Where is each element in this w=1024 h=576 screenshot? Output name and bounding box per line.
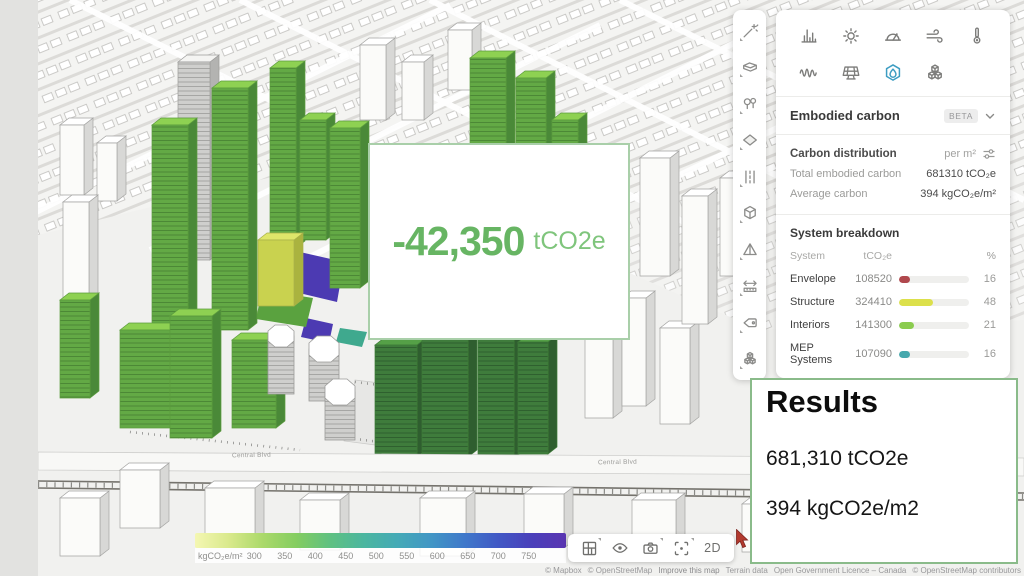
asset-cubes-icon bbox=[741, 350, 759, 368]
layout-grid-icon bbox=[580, 539, 599, 558]
beta-badge: BETA bbox=[944, 109, 978, 123]
carbon-savings-callout: -42,350 tCO2e bbox=[368, 143, 630, 340]
carbon-distribution-label: Carbon distribution bbox=[790, 148, 944, 160]
eye-icon bbox=[610, 538, 630, 558]
temperature-tool[interactable] bbox=[962, 22, 992, 49]
row-percent: 48 bbox=[976, 296, 996, 308]
mode-2d-label: 2D bbox=[704, 541, 721, 555]
attr-licence: Open Government Licence – Canada bbox=[774, 566, 907, 575]
camera-icon bbox=[641, 539, 660, 558]
row-system: Interiors bbox=[790, 319, 846, 331]
results-total: 681,310 tCO2e bbox=[766, 447, 1002, 471]
row-value: 324410 bbox=[846, 296, 892, 308]
attr-osm: © OpenStreetMap bbox=[588, 566, 653, 575]
legend-tick: 700 bbox=[483, 551, 514, 561]
daylight-gauge-icon bbox=[882, 25, 904, 47]
wind-tool[interactable] bbox=[920, 22, 950, 49]
table-row: Structure 324410 48 bbox=[790, 296, 996, 308]
results-average: 394 kgCO2e/m2 bbox=[766, 497, 1002, 521]
col-tco2e: tCO₂e bbox=[846, 250, 892, 262]
legend-tick: 750 bbox=[514, 551, 545, 561]
table-row: Envelope 108520 16 bbox=[790, 273, 996, 285]
attr-contributors: © OpenStreetMap contributors bbox=[912, 566, 1021, 575]
focus-button[interactable] bbox=[670, 536, 694, 560]
attr-terrain: Terrain data bbox=[726, 566, 768, 575]
legend-tick: 300 bbox=[239, 551, 270, 561]
road-label: Central Blvd bbox=[598, 459, 637, 467]
sun-hours-tool[interactable] bbox=[836, 22, 866, 49]
table-row: MEP Systems 107090 16 bbox=[790, 342, 996, 366]
volume-box-icon bbox=[741, 58, 759, 76]
embodied-carbon-icon bbox=[882, 62, 904, 84]
noise-wave-icon bbox=[798, 62, 820, 84]
system-breakdown-section: System breakdown System tCO₂e % Envelope… bbox=[776, 215, 1010, 366]
breakdown-header: System tCO₂e % bbox=[790, 250, 996, 262]
row-value: 141300 bbox=[846, 319, 892, 331]
legend-gradient bbox=[195, 533, 566, 548]
road-label: Central Blvd bbox=[232, 452, 271, 460]
panel-title: Embodied carbon bbox=[790, 108, 938, 123]
row-bar-fill bbox=[899, 299, 933, 306]
surface-icon bbox=[741, 131, 759, 149]
box-3d-tool[interactable] bbox=[739, 202, 761, 224]
total-carbon-value: 681310 tCO₂e bbox=[926, 168, 996, 180]
app-window: Central Blvd Central Blvd Central Blvd bbox=[0, 0, 1024, 576]
sliders-icon[interactable] bbox=[982, 147, 996, 161]
per-m2-unit: per m² bbox=[944, 148, 976, 160]
measure-tool[interactable] bbox=[739, 275, 761, 297]
edit-toolbar bbox=[733, 10, 766, 380]
row-bar-track bbox=[899, 276, 969, 283]
chevron-down-icon[interactable] bbox=[984, 110, 996, 122]
row-system: Envelope bbox=[790, 273, 846, 285]
analysis-panel: Embodied carbon BETA Carbon distribution… bbox=[776, 10, 1010, 378]
vegetation-tool[interactable] bbox=[739, 93, 761, 115]
panel-section-header: Embodied carbon BETA bbox=[776, 97, 1010, 134]
sun-icon bbox=[840, 25, 862, 47]
callout-value: -42,350 bbox=[392, 218, 524, 265]
thermometer-icon bbox=[966, 25, 988, 47]
row-bar-fill bbox=[899, 351, 910, 358]
carbon-legend: kgCO₂e/m² 300 350 400 450 500 550 600 65… bbox=[195, 533, 566, 563]
camera-button[interactable] bbox=[639, 536, 663, 560]
row-bar-fill bbox=[899, 276, 910, 283]
row-percent: 21 bbox=[976, 319, 996, 331]
average-carbon-label: Average carbon bbox=[790, 188, 920, 200]
legend-tick: 600 bbox=[422, 551, 453, 561]
legend-tick: 650 bbox=[453, 551, 484, 561]
row-system: Structure bbox=[790, 296, 846, 308]
roads-tool[interactable] bbox=[739, 166, 761, 188]
legend-labels: kgCO₂e/m² 300 350 400 450 500 550 600 65… bbox=[195, 548, 566, 563]
row-bar-track bbox=[899, 299, 969, 306]
row-bar-track bbox=[899, 322, 969, 329]
materials-tool[interactable] bbox=[920, 59, 950, 86]
vegetation-icon bbox=[741, 95, 759, 113]
label-tag-icon bbox=[741, 314, 759, 332]
prism-icon bbox=[741, 241, 759, 259]
mouse-cursor bbox=[735, 529, 751, 555]
magic-wand-icon bbox=[741, 22, 759, 40]
asset-cubes-tool[interactable] bbox=[739, 348, 761, 370]
mode-2d-button[interactable]: 2D bbox=[701, 536, 725, 560]
carbon-distribution-section: Carbon distribution per m² Total embodie… bbox=[776, 135, 1010, 214]
magic-wand-tool[interactable] bbox=[739, 20, 761, 42]
viewport-toolbar: 2D bbox=[568, 534, 734, 562]
callout-unit: tCO2e bbox=[533, 227, 605, 256]
legend-tick: 450 bbox=[331, 551, 362, 561]
wind-icon bbox=[924, 25, 946, 47]
solar-panel-icon bbox=[840, 62, 862, 84]
cursor-arrow-icon bbox=[735, 529, 751, 550]
solar-panel-tool[interactable] bbox=[836, 59, 866, 86]
legend-tick: 500 bbox=[361, 551, 392, 561]
surface-tool[interactable] bbox=[739, 129, 761, 151]
col-system: System bbox=[790, 250, 846, 262]
analysis-tools-grid bbox=[776, 10, 1010, 96]
statistics-tool[interactable] bbox=[794, 22, 824, 49]
map-attribution: © Mapbox © OpenStreetMap Improve this ma… bbox=[545, 566, 1021, 575]
noise-tool[interactable] bbox=[794, 59, 824, 86]
visibility-button[interactable] bbox=[608, 536, 632, 560]
row-bar-fill bbox=[899, 322, 914, 329]
results-title: Results bbox=[766, 384, 1002, 420]
volume-box-tool[interactable] bbox=[739, 56, 761, 78]
total-carbon-label: Total embodied carbon bbox=[790, 168, 926, 180]
row-value: 108520 bbox=[846, 273, 892, 285]
system-breakdown-title: System breakdown bbox=[790, 226, 996, 240]
legend-unit: kgCO₂e/m² bbox=[195, 551, 239, 561]
col-percent: % bbox=[976, 250, 996, 262]
layout-grid-button[interactable] bbox=[577, 536, 601, 560]
attr-mapbox: © Mapbox bbox=[545, 566, 582, 575]
average-carbon-value: 394 kgCO₂e/m² bbox=[920, 188, 996, 200]
improve-map-link[interactable]: Improve this map bbox=[658, 566, 719, 575]
legend-tick: 400 bbox=[300, 551, 331, 561]
row-percent: 16 bbox=[976, 273, 996, 285]
legend-tick: 350 bbox=[270, 551, 301, 561]
materials-cubes-icon bbox=[924, 62, 946, 84]
focus-target-icon bbox=[672, 539, 691, 558]
row-bar-track bbox=[899, 351, 969, 358]
row-value: 107090 bbox=[846, 348, 892, 360]
row-percent: 16 bbox=[976, 348, 996, 360]
roads-icon bbox=[741, 168, 759, 186]
results-box: Results 681,310 tCO2e 394 kgCO2e/m2 bbox=[750, 378, 1018, 564]
statistics-icon bbox=[798, 25, 820, 47]
embodied-carbon-tool[interactable] bbox=[878, 59, 908, 86]
box-3d-icon bbox=[741, 204, 759, 222]
prism-tool[interactable] bbox=[739, 239, 761, 261]
row-system: MEP Systems bbox=[790, 342, 846, 366]
legend-tick: 550 bbox=[392, 551, 423, 561]
label-tag-tool[interactable] bbox=[739, 312, 761, 334]
table-row: Interiors 141300 21 bbox=[790, 319, 996, 331]
daylight-tool[interactable] bbox=[878, 22, 908, 49]
measure-icon bbox=[741, 277, 759, 295]
